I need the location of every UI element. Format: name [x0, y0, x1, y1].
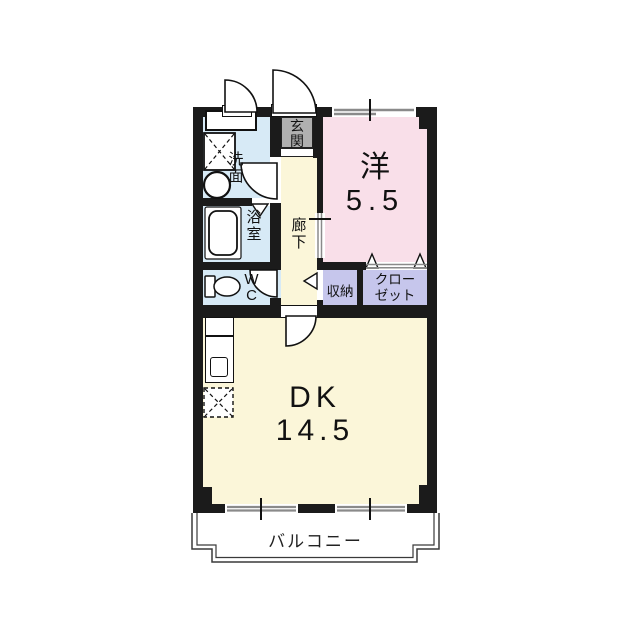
door-threshold-small [222, 105, 252, 117]
wall-wet-hall-1 [270, 117, 281, 157]
bathroom-label: 浴室 [246, 210, 262, 243]
kitchen-counter [205, 317, 234, 383]
wall-bottom-1 [193, 504, 225, 513]
western-room-label: 洋 5.5 [323, 151, 427, 217]
wall-storage-side [317, 300, 323, 305]
closet-label-line1: クロー [363, 272, 427, 288]
kitchen-counter-divider [206, 335, 233, 337]
wall-bottom-3 [407, 504, 437, 513]
pillar-top-right [419, 117, 437, 129]
dk-size: 14.5 [203, 414, 427, 447]
closet-label-line2: ゼット [363, 288, 427, 304]
window-bottom-left-opening [225, 504, 298, 513]
floor-plan: 玄関 洗面 浴室 WC 廊下 洋 5.5 収納 クロー ゼット DK 14.5 … [0, 0, 640, 640]
wall-wet-hall-2 [270, 203, 281, 270]
entrance-label: 玄関 [289, 119, 305, 148]
dk-label: DK 14.5 [203, 381, 427, 447]
entrance-step [281, 148, 313, 157]
wall-bottom-2 [298, 504, 335, 513]
washroom-label: 洗面 [228, 152, 244, 185]
dk-name: DK [203, 381, 427, 414]
closet-label: クロー ゼット [363, 272, 427, 303]
hallway-label: 廊下 [291, 217, 307, 251]
window-bottom-right-opening [335, 504, 407, 513]
window-top-opening [332, 107, 416, 117]
wall-top-3 [316, 107, 332, 117]
wall-western-storage [317, 262, 366, 270]
balcony-label: バルコニー [192, 527, 439, 552]
western-room-name: 洋 [323, 151, 427, 185]
storage-label: 収納 [323, 280, 357, 300]
wall-washroom-bathroom [203, 198, 252, 206]
wall-entrance-jamb [313, 117, 323, 158]
door-threshold-entrance [271, 104, 317, 117]
toilet-label: WC [244, 272, 259, 303]
wall-left [193, 107, 203, 513]
wall-mid-horizontal-2 [317, 305, 437, 318]
dk-door-threshold [281, 305, 317, 318]
western-room-size: 5.5 [323, 185, 427, 217]
sliding-door-opening [315, 213, 325, 258]
wall-bathroom-toilet [203, 262, 270, 270]
kitchen-sink [210, 357, 228, 377]
